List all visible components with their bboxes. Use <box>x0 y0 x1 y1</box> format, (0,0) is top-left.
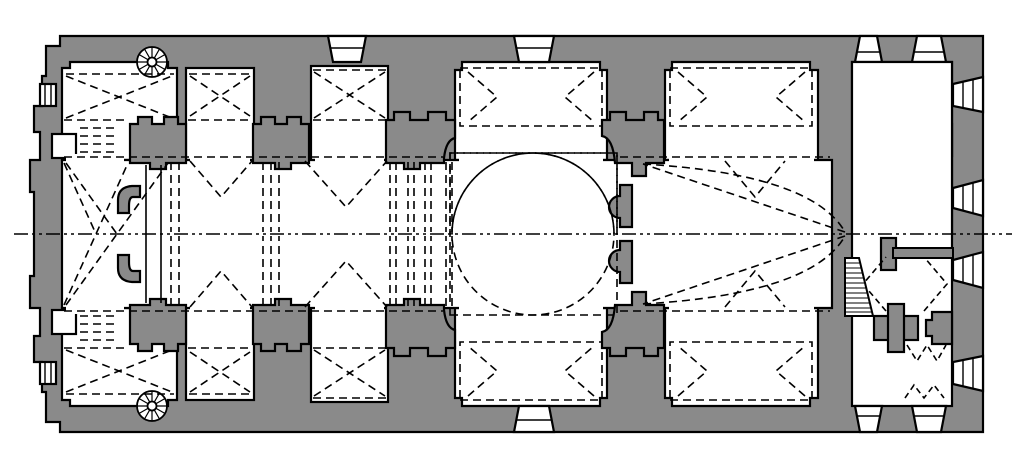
chapel-5-long <box>665 62 818 160</box>
nave-band <box>62 160 832 234</box>
north-window <box>328 36 366 62</box>
chapel-4-long <box>455 62 607 160</box>
floor-plan-page <box>0 0 1024 466</box>
top-window <box>514 36 554 62</box>
narthex-t-pier <box>893 248 953 258</box>
west-window <box>40 84 56 106</box>
plan-drawing <box>14 36 1012 432</box>
colonnade-column-2 <box>912 36 946 62</box>
nave-pier-2 <box>253 117 309 169</box>
colonnade-column-1 <box>855 36 882 62</box>
spiral-staircase-icon <box>137 47 167 77</box>
nave-pier-1 <box>130 117 186 169</box>
crossing-pier-west <box>386 112 455 169</box>
facade-window-a <box>953 77 983 112</box>
floor-plan-canvas <box>0 0 1024 466</box>
west-chapel-2 <box>186 68 254 160</box>
chapel-3 <box>311 66 388 160</box>
